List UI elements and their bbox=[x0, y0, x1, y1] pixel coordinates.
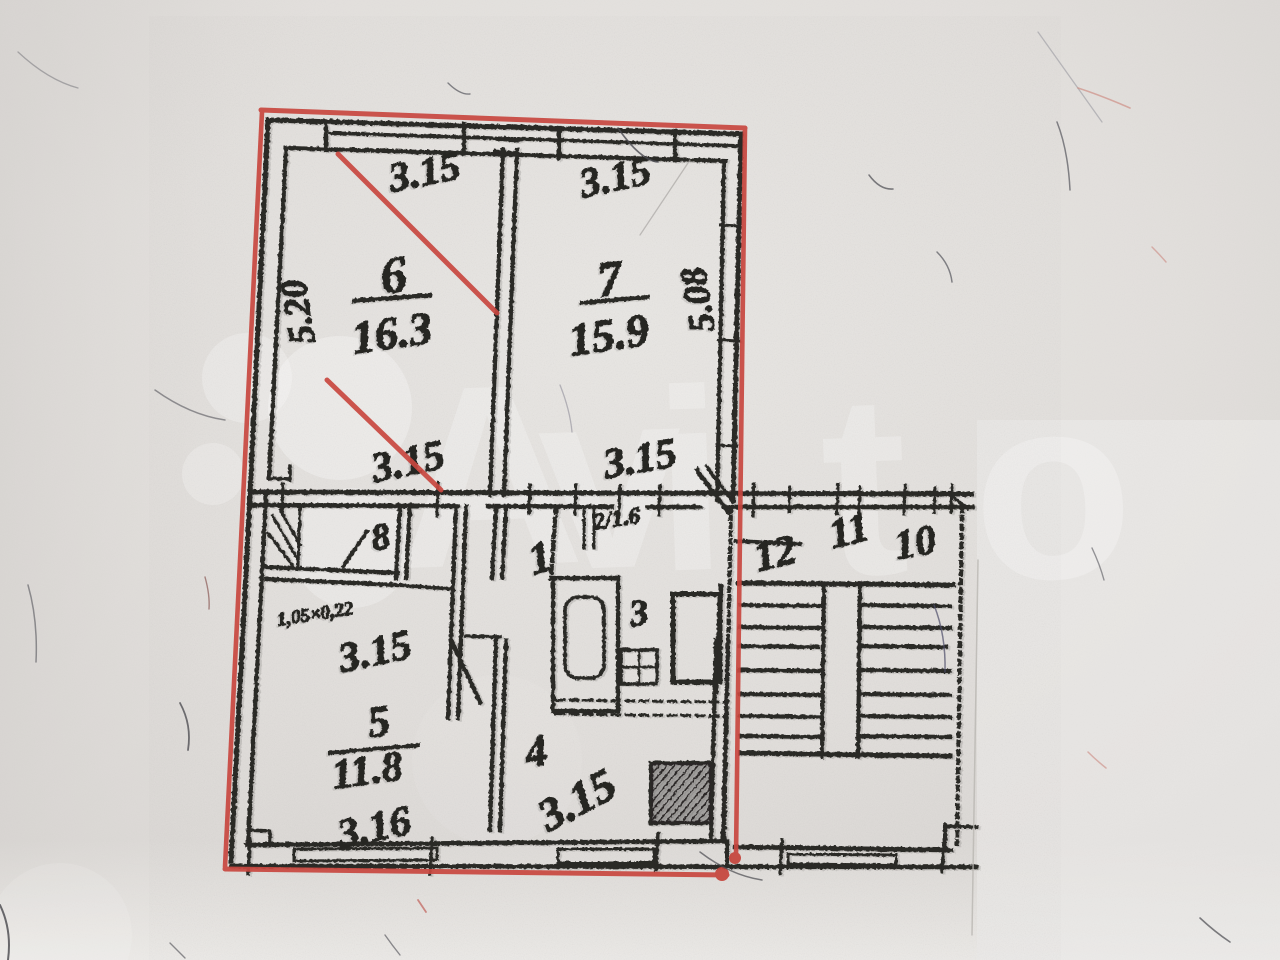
svg-text:o: o bbox=[967, 338, 1137, 636]
svg-text:11.8: 11.8 bbox=[329, 743, 406, 798]
svg-text:10: 10 bbox=[890, 517, 939, 570]
